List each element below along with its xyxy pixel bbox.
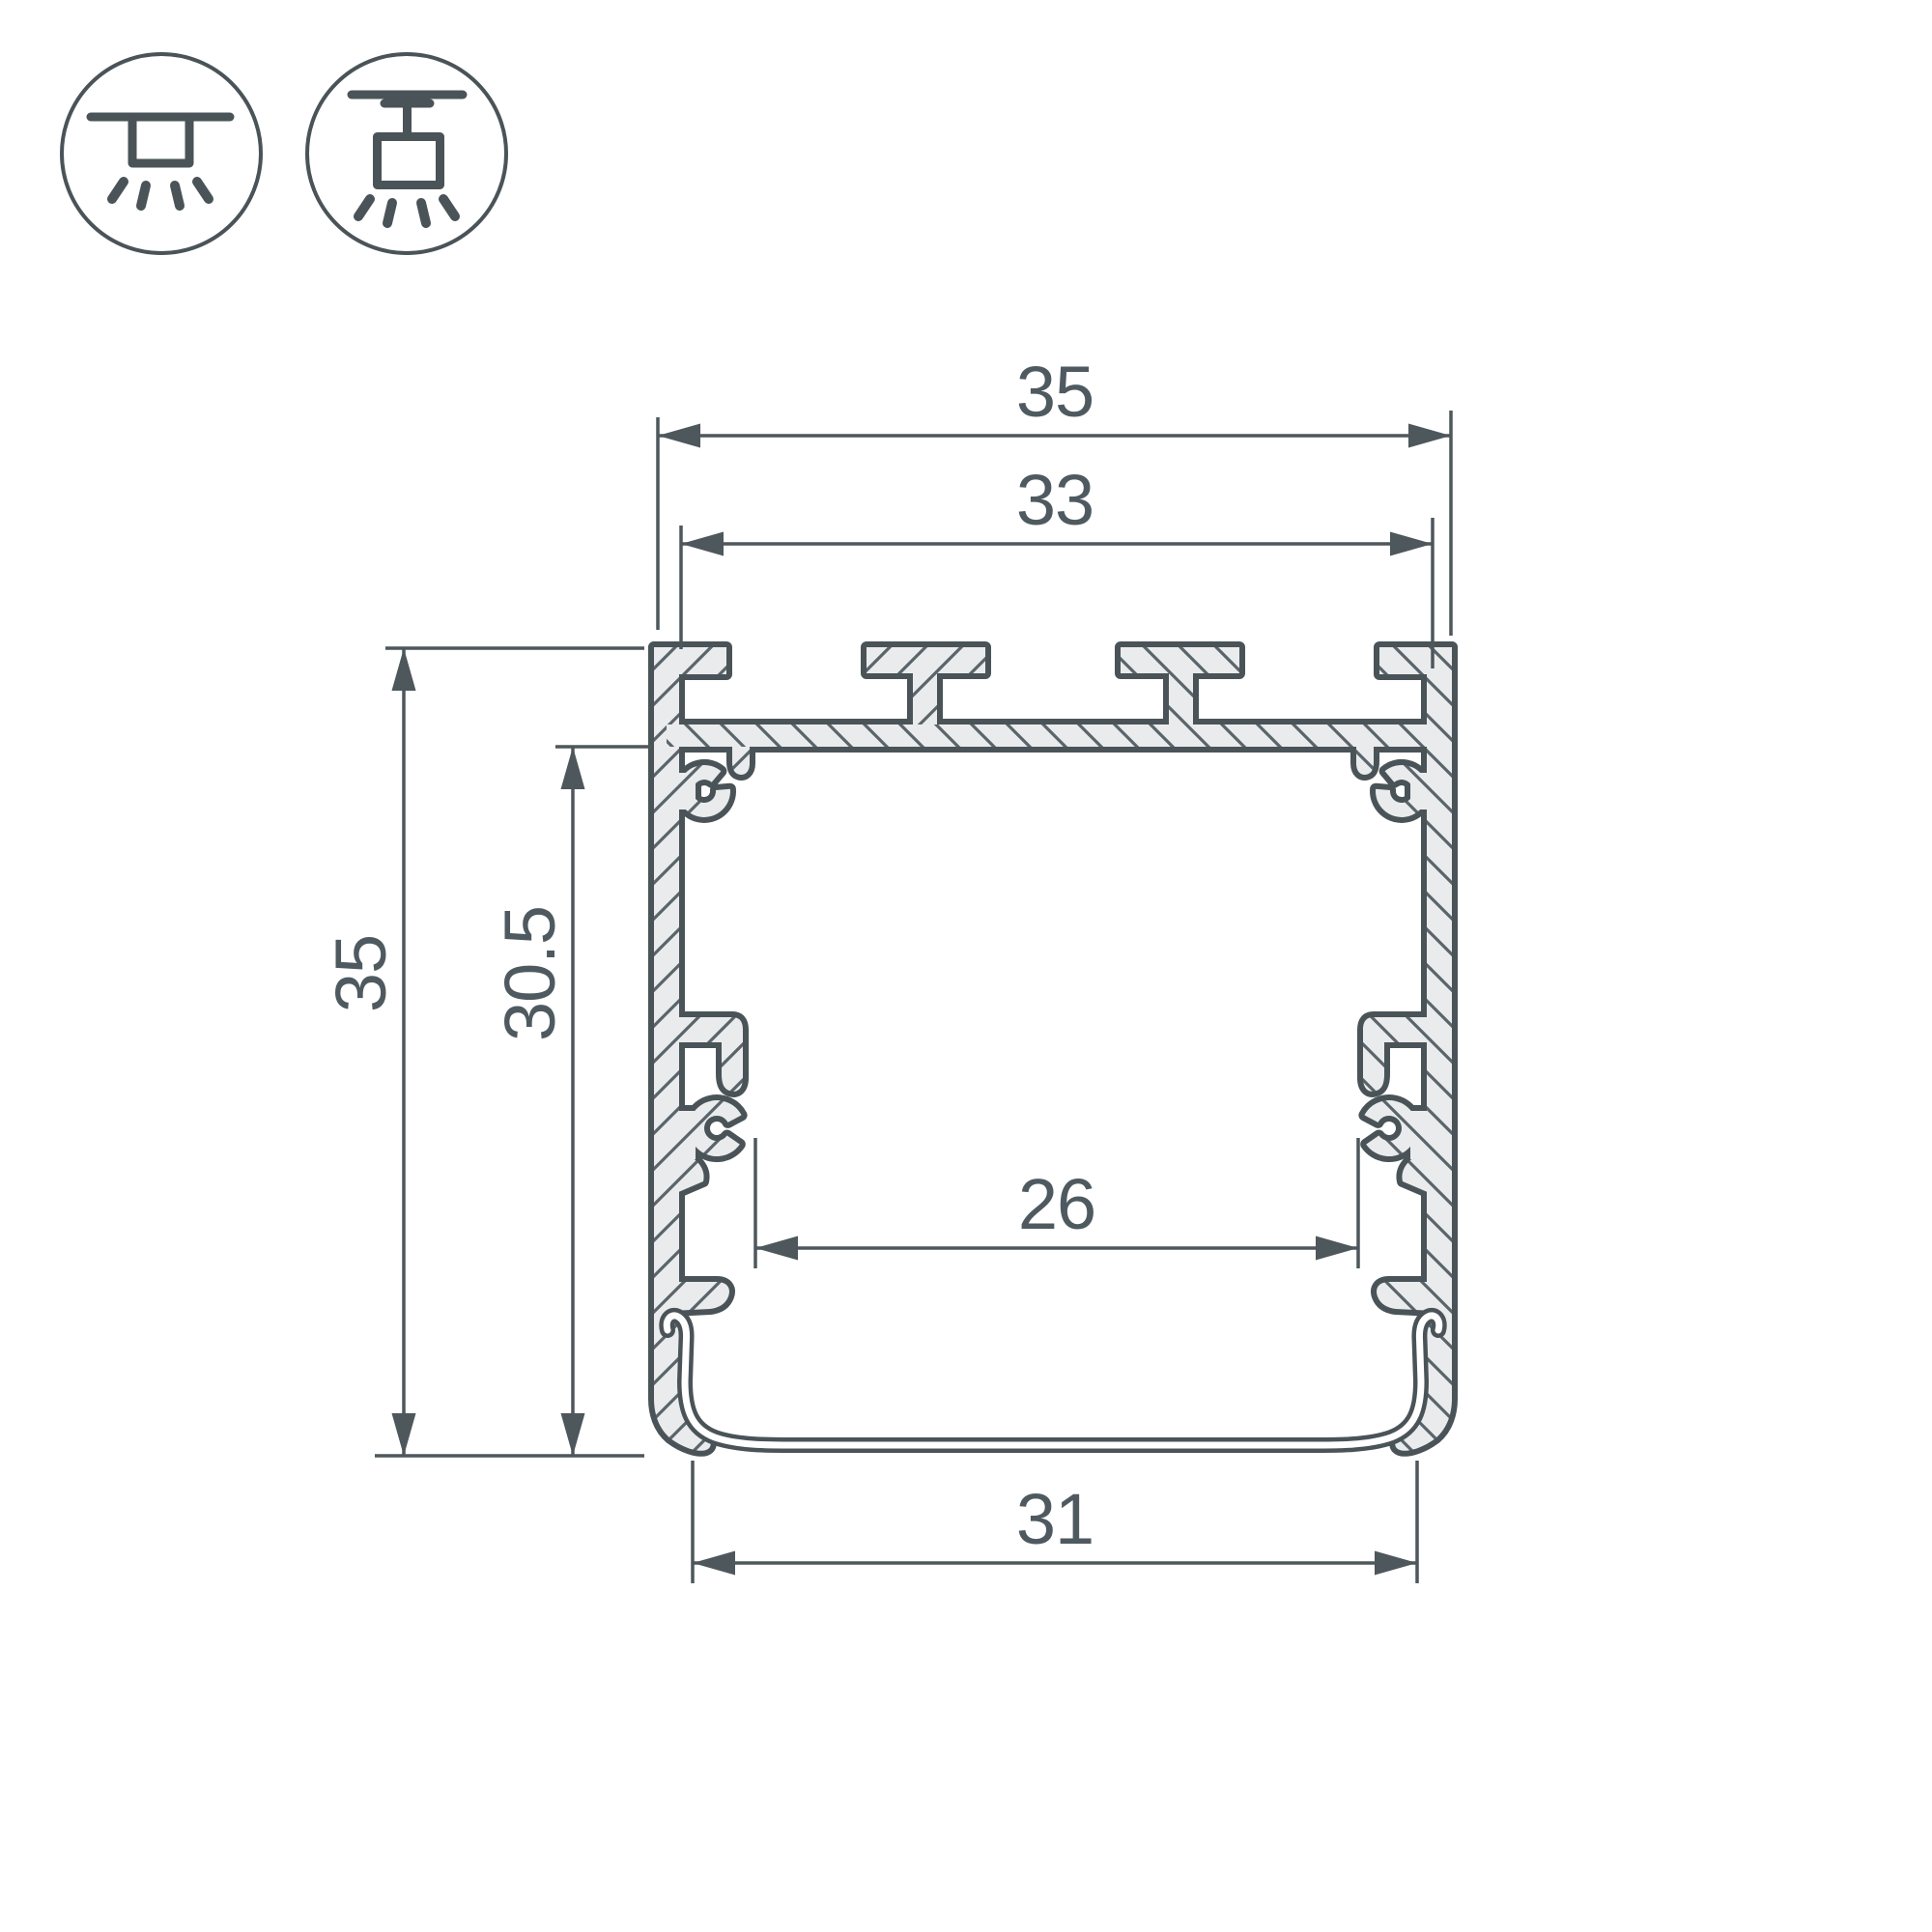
dim-inner-width-label: 26 bbox=[1018, 1164, 1095, 1244]
dimension-inner-height: 30.5 bbox=[490, 747, 651, 1456]
dimension-top-slot-width: 33 bbox=[681, 460, 1433, 668]
diffuser-cover bbox=[667, 1316, 1438, 1445]
drawing-canvas: 35 33 35 30.5 bbox=[0, 0, 1932, 1932]
profile-hatch bbox=[654, 647, 1452, 1451]
dimension-outer-height: 35 bbox=[321, 648, 644, 1456]
dim-top-slot-width-label: 33 bbox=[1016, 460, 1094, 540]
surface-mount-icon bbox=[62, 54, 261, 253]
technical-drawing-page: 35 33 35 30.5 bbox=[0, 0, 1932, 1932]
icon-circle bbox=[62, 54, 261, 253]
dim-inner-height-label: 30.5 bbox=[490, 906, 570, 1041]
profile-cross-section bbox=[654, 647, 1452, 1451]
dimensions: 35 33 35 30.5 bbox=[321, 352, 1451, 1583]
icon-circle bbox=[307, 54, 506, 253]
dimension-inner-width: 26 bbox=[755, 1138, 1358, 1268]
dimension-bottom-width: 31 bbox=[693, 1461, 1417, 1583]
mounting-icons bbox=[62, 54, 506, 253]
profile-outline bbox=[654, 647, 1452, 1451]
pendant-mount-icon bbox=[307, 54, 506, 253]
dim-bottom-width-label: 31 bbox=[1016, 1479, 1094, 1559]
dim-outer-width-label: 35 bbox=[1016, 352, 1094, 432]
dim-outer-height-label: 35 bbox=[321, 935, 401, 1012]
